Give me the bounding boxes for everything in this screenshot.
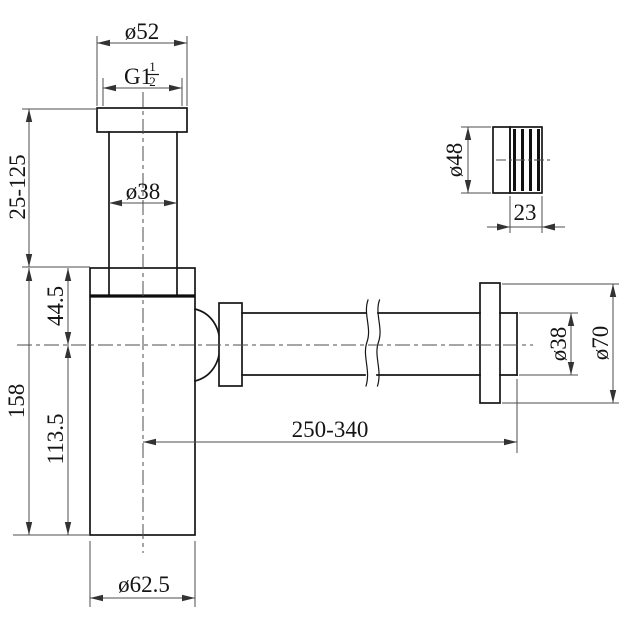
technical-drawing-canvas: ø52 G1 1 2 ø38 25-125 44.5 158 113.5 ø62… [0,0,640,640]
label-outlet-pipe-diameter: ø38 [546,327,571,362]
label-thread-base: G1 [124,64,152,89]
label-body-height: 158 [4,384,29,419]
label-cap-diameter: ø52 [125,19,160,44]
inlet-cap-outline [97,108,187,132]
label-body-diameter: ø62.5 [118,572,170,597]
centerlines [17,92,550,553]
label-adapter-length: 23 [514,200,537,225]
dimension-labels: ø52 G1 1 2 ø38 25-125 44.5 158 113.5 ø62… [4,19,613,597]
arrowhead [542,224,555,231]
label-outlet-length-range: 250-340 [292,417,369,442]
label-wall-flange-diameter: ø70 [588,326,613,361]
wall-flange-outline [480,283,500,403]
label-flange-to-axis: 44.5 [43,286,68,326]
label-axis-to-bottom: 113.5 [43,414,68,465]
label-adapter-diameter: ø48 [442,143,467,178]
label-thread-denominator: 2 [149,74,156,89]
label-inlet-adjust-range: 25-125 [5,154,30,219]
dimension-lines [13,36,619,607]
arrowhead [497,224,510,231]
label-inlet-tube-diameter: ø38 [126,179,161,204]
bottle-trap-drawing: ø52 G1 1 2 ø38 25-125 44.5 158 113.5 ø62… [0,0,640,640]
label-thread-numerator: 1 [149,59,156,74]
